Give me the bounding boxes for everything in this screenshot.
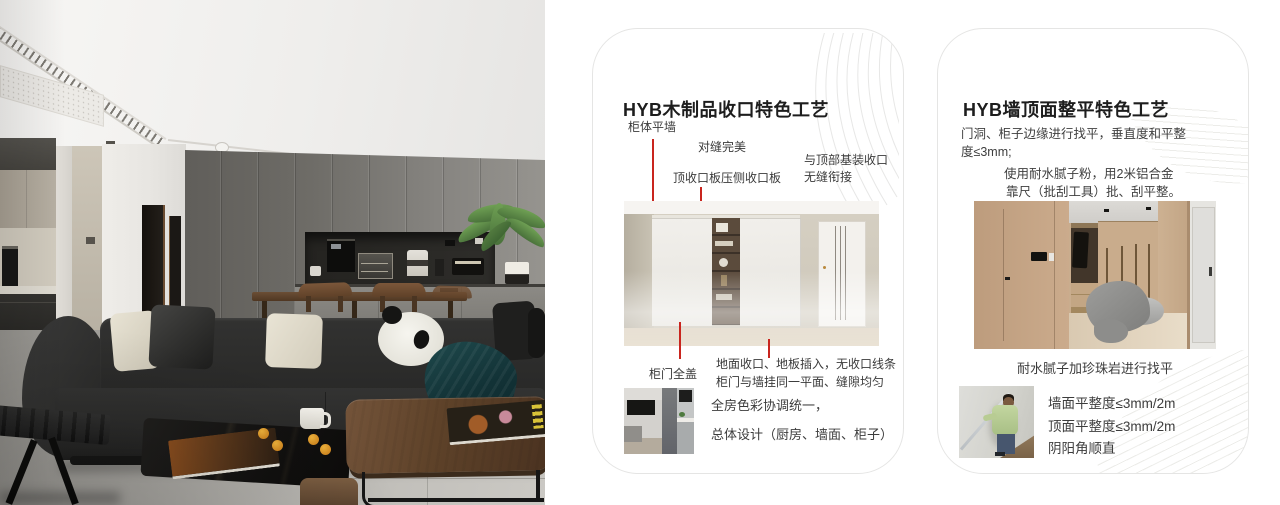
shelf-item [715, 241, 733, 246]
light-reflection [624, 271, 879, 346]
table-wood-base [300, 478, 358, 505]
callout-top-board: 顶收口板压侧收口板 [673, 170, 781, 187]
blanket-drape [1094, 319, 1128, 343]
callout-ceiling-joint-2: 无缝衔接 [804, 169, 852, 186]
hanging-clothes [1072, 232, 1089, 269]
closet-niche [1071, 223, 1098, 288]
kitchen-counter [0, 286, 56, 294]
black-pillow [148, 304, 215, 369]
callout-floor-closing-2: 柜门与墙挂同一平面、缝隙均匀 [716, 374, 884, 391]
small-mug [310, 266, 321, 276]
thumb-base-cabinet [677, 422, 694, 454]
orange-fruit [258, 428, 269, 439]
orange-fruit [272, 440, 283, 451]
intercom-panel [1031, 252, 1047, 261]
callout-ceiling-joint-1: 与顶部基装收口 [804, 152, 888, 169]
worker-jeans [997, 434, 1015, 454]
thumb-appliance [679, 390, 692, 402]
thumb-plant [679, 412, 685, 417]
summary-line-2: 总体设计（厨房、墙面、柜子） [711, 424, 893, 443]
card-title: HYB墙顶面整平特色工艺 [963, 96, 1169, 122]
image-caption: 耐水腻子加珍珠岩进行找平 [974, 358, 1216, 377]
card-wood-finishing: HYB木制品收口特色工艺 柜体平墙 对缝完美 顶收口板压侧收口板 与顶部基装收口… [592, 28, 904, 474]
thumb-sofa [624, 426, 642, 442]
dining-chair [372, 283, 426, 297]
card-wall-leveling: HYB墙顶面整平特色工艺 门洞、柜子边缘进行找平，垂直度和平整 度≤3mm; 使… [937, 28, 1249, 474]
shelf-item [719, 258, 728, 267]
paragraph2-line2: 靠尺（批刮工具）批、刮平整。 [1006, 183, 1181, 201]
metric-wall-flatness: 墙面平整度≤3mm/2m [1048, 392, 1175, 412]
table-frame-bar [368, 498, 544, 502]
door-handle [1005, 277, 1010, 280]
chair-leg [412, 296, 417, 312]
shelf-item [716, 223, 728, 232]
paragraph1-line2: 度≤3mm; [961, 143, 1012, 161]
door-seam [1054, 201, 1055, 349]
chair-leg [306, 296, 311, 312]
worker-shoe [995, 452, 1005, 456]
wall-pillar [56, 146, 73, 340]
paragraph1-line1: 门洞、柜子边缘进行找平，垂直度和平整 [961, 125, 1186, 143]
metric-corners: 阴阳角顺直 [1048, 437, 1116, 457]
houseplant [455, 203, 545, 287]
cup-rack [358, 253, 393, 279]
hall-left-wall [974, 201, 1069, 349]
open-doorway [1190, 201, 1216, 349]
door-handle [1209, 267, 1212, 276]
callout-perfect-seams: 对缝完美 [698, 139, 746, 156]
orange-fruit [320, 444, 331, 455]
panda-ear [382, 306, 402, 324]
grinder [435, 259, 444, 276]
table-leg [352, 301, 357, 318]
kitchen-thumbnail [624, 388, 694, 454]
hallway-photo [974, 201, 1216, 349]
cabinet-render-image [624, 201, 879, 346]
intercom-chip [1049, 253, 1054, 261]
dining-chair [432, 285, 472, 298]
cream-pillow [265, 313, 323, 369]
stool-shadow [0, 492, 120, 504]
callout-cabinet-flush-wall: 柜体平墙 [628, 119, 676, 136]
thumb-wall [624, 388, 662, 400]
table-frame-leg [536, 470, 540, 502]
metric-ceiling-flatness: 顶面平整度≤3mm/2m [1048, 415, 1175, 435]
page-root: HYB木制品收口特色工艺 柜体平墙 对缝完美 顶收口板压侧收口板 与顶部基装收口… [0, 0, 1280, 505]
callout-floor-closing-1: 地面收口、地板插入，无收口线条 [716, 356, 896, 373]
coffee-machine [407, 250, 428, 276]
kitchen-upper-cabinet [0, 138, 56, 170]
black-pillow [528, 308, 545, 358]
worker-photo [959, 386, 1034, 458]
espresso-machine [327, 239, 355, 272]
power-socket [445, 240, 455, 246]
kitchen-cabinets [0, 138, 56, 340]
kitchen-appliance [2, 246, 18, 289]
light-switch [86, 237, 95, 244]
plant-pot [505, 262, 529, 284]
white-mug [300, 408, 324, 429]
thumb-tv [627, 400, 655, 415]
callout-full-overlay-doors: 柜门全盖 [649, 366, 697, 383]
thumb-gray-cabinet [662, 388, 677, 454]
table-leg [262, 301, 267, 318]
worker-jacket [992, 405, 1018, 435]
downlight [1146, 207, 1151, 210]
downlight [1104, 209, 1109, 212]
kitchen-wall-cabinet [0, 170, 56, 229]
living-room-photo [0, 0, 545, 505]
door-seam [1003, 209, 1004, 341]
door-handle [823, 266, 826, 269]
table-leg [448, 301, 453, 318]
chair-leg [338, 296, 343, 312]
orange-fruit [308, 434, 319, 445]
summary-line-1: 全房色彩协调统一， [711, 395, 828, 414]
paragraph2-line1: 使用耐水腻子粉，用2米铝合金 [1004, 165, 1173, 183]
callout-leader-line [679, 322, 681, 359]
